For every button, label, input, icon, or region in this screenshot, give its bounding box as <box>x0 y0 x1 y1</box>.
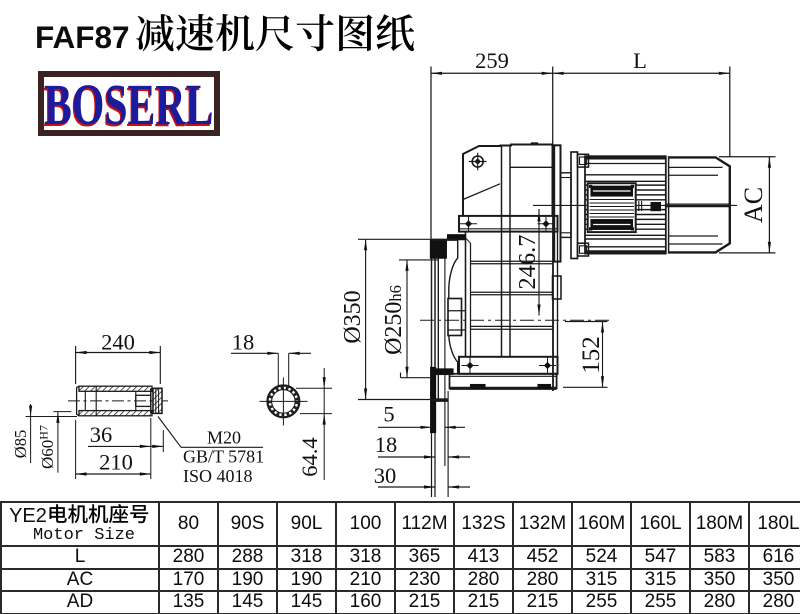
svg-text:M20: M20 <box>207 428 241 448</box>
svg-text:ISO 4018: ISO 4018 <box>183 466 253 486</box>
svg-text:246.7: 246.7 <box>514 234 541 289</box>
svg-text:Ø350: Ø350 <box>340 290 366 343</box>
svg-text:L: L <box>633 48 647 73</box>
svg-text:AC: AC <box>739 187 768 223</box>
svg-text:18: 18 <box>232 330 255 355</box>
svg-text:Ø250h6: Ø250h6 <box>381 285 407 355</box>
svg-text:36: 36 <box>90 422 113 447</box>
svg-text:FAF87: FAF87 <box>35 19 130 55</box>
svg-text:GB/T 5781: GB/T 5781 <box>183 446 264 466</box>
svg-text:Ø60H7: Ø60H7 <box>37 425 58 469</box>
svg-text:240: 240 <box>101 330 135 355</box>
svg-text:152: 152 <box>578 336 605 374</box>
svg-text:64.4: 64.4 <box>297 437 322 476</box>
svg-text:5: 5 <box>383 402 394 427</box>
svg-text:18: 18 <box>375 432 398 457</box>
svg-text:30: 30 <box>374 463 397 488</box>
svg-text:210: 210 <box>99 450 133 475</box>
svg-text:Ø85: Ø85 <box>11 430 30 458</box>
svg-text:259: 259 <box>475 48 509 73</box>
